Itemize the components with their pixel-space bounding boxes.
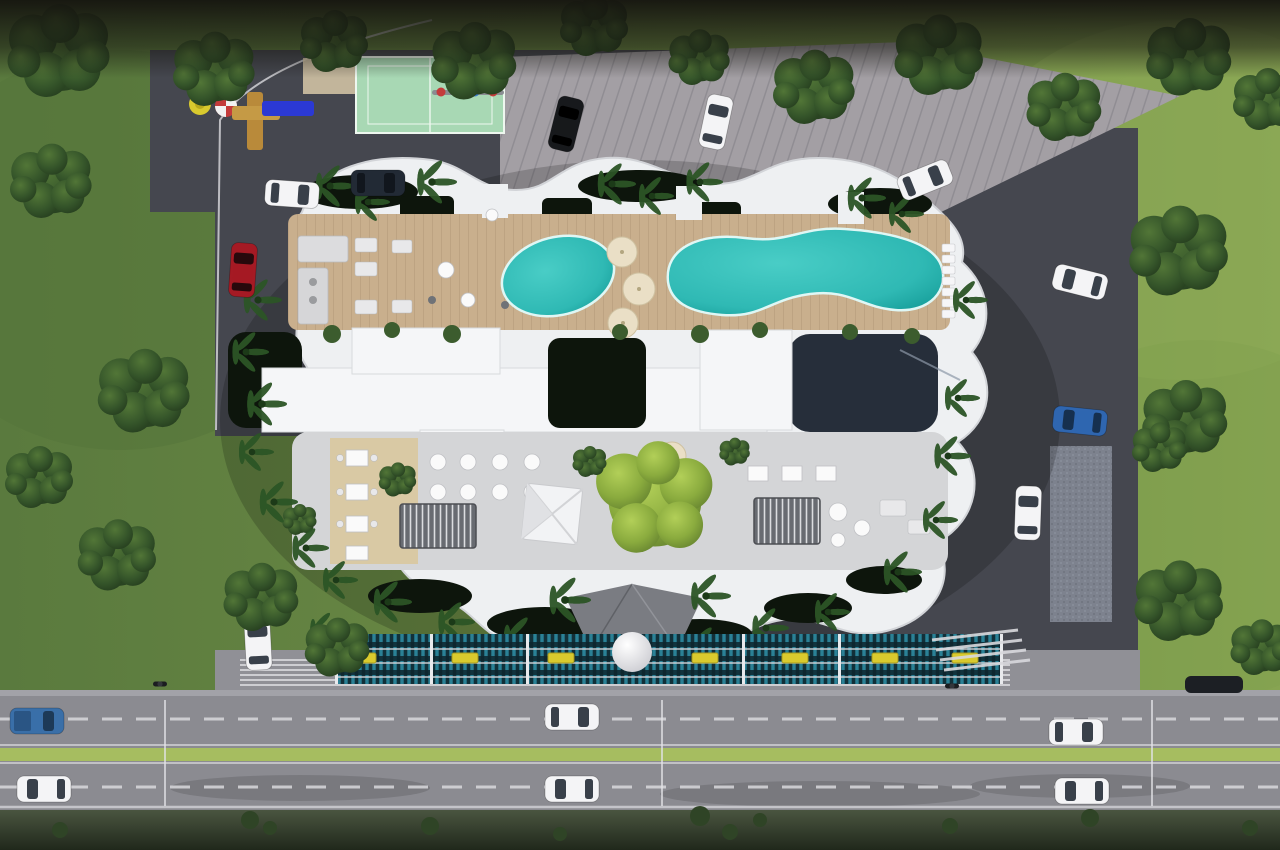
sun-loungers [942,244,955,318]
gravel-strip [1050,446,1112,622]
play-mat [262,101,314,116]
motorcycle-east [945,683,959,688]
road [0,690,1280,850]
event-canopy [521,483,583,545]
blue-pickup [10,708,64,734]
navy-car-left [351,170,405,196]
dark-car-far-east [1185,676,1243,693]
play-structure [247,92,263,150]
pergola-right [754,498,820,544]
top-vignette [0,0,1280,78]
aerial-site-render [0,0,1280,850]
white-sedan-east-3 [1055,778,1109,804]
white-sedan-east-1 [17,776,71,802]
sphere-sculpture [612,632,652,672]
white-sedan-east-2 [545,776,599,802]
white-sedan-west-2 [1049,719,1103,745]
motorcycle-west [153,681,167,686]
white-car-left [264,179,320,209]
site-plan-canvas [0,0,1280,850]
pergola-left [400,504,476,548]
white-car-lower-right [1014,486,1042,541]
red-car [228,242,258,298]
blue-car [1052,405,1108,437]
white-sedan-west-1 [545,704,599,730]
road-median [0,748,1280,761]
